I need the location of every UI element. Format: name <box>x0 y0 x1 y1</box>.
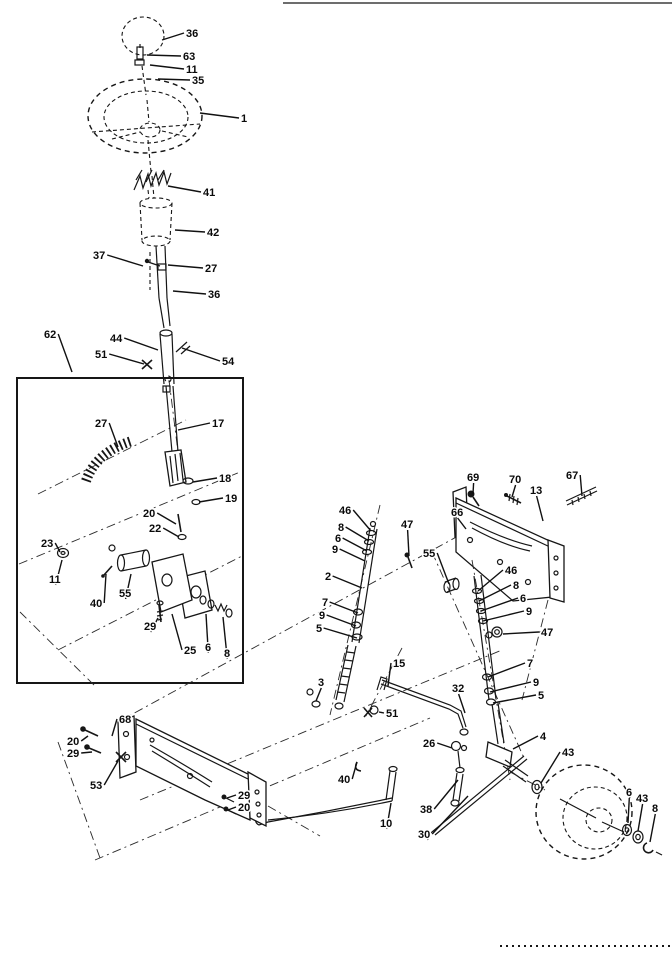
callout-label-8: 8 <box>513 580 519 592</box>
callout-leader <box>408 530 409 556</box>
callout-label-7: 7 <box>527 658 533 670</box>
callout-leader <box>150 65 184 69</box>
callout-leader <box>638 804 643 831</box>
callout-label-23: 23 <box>41 538 53 550</box>
callout-label-11: 11 <box>49 574 61 586</box>
callout-leader <box>541 752 560 783</box>
callout-leader <box>346 527 369 541</box>
callout-label-2: 2 <box>325 571 331 583</box>
callout-leader <box>81 752 92 753</box>
callout-label-68: 68 <box>119 714 131 726</box>
callout-leader <box>147 55 181 56</box>
callout-label-7: 7 <box>322 597 328 609</box>
callout-leader <box>537 496 543 521</box>
callout-leader <box>104 574 106 603</box>
callout-leader <box>580 475 582 496</box>
callout-label-55: 55 <box>423 548 435 560</box>
callout-label-29: 29 <box>144 621 156 633</box>
callout-label-54: 54 <box>222 356 235 368</box>
exploded-parts-diagram: 3663113514142372736624451541727181920222… <box>0 0 672 953</box>
callout-leader <box>173 291 206 294</box>
callout-label-20: 20 <box>143 508 155 520</box>
callout-leader <box>168 265 203 268</box>
shaft-extension <box>142 330 190 384</box>
callout-leader <box>168 186 201 192</box>
upper-steering-shaft <box>145 246 170 328</box>
callout-label-36: 36 <box>186 28 198 40</box>
callout-leader <box>104 761 118 785</box>
callout-leader <box>437 553 449 584</box>
callout-leader <box>200 113 239 118</box>
callout-label-5: 5 <box>538 690 544 702</box>
callout-leader <box>437 743 452 748</box>
callout-label-67: 67 <box>566 470 578 482</box>
callout-leader <box>330 602 358 613</box>
callout-leader <box>483 611 524 621</box>
steering-wheel-assembly <box>88 17 202 172</box>
callout-label-5: 5 <box>316 623 322 635</box>
callout-label-15: 15 <box>393 658 405 670</box>
callout-label-6: 6 <box>626 787 632 799</box>
callout-leader <box>512 485 516 497</box>
callout-label-9: 9 <box>319 610 325 622</box>
drag-link-bushing <box>444 578 459 593</box>
callout-label-4: 4 <box>540 731 547 743</box>
callout-label-9: 9 <box>332 544 338 556</box>
callout-label-62: 62 <box>44 329 56 341</box>
callout-label-3: 3 <box>318 677 324 689</box>
callout-label-26: 26 <box>423 738 435 750</box>
callout-label-47: 47 <box>401 519 413 531</box>
callout-leader <box>493 695 536 703</box>
callout-label-17: 17 <box>212 418 224 430</box>
callout-label-9: 9 <box>533 677 539 689</box>
callout-label-47: 47 <box>541 627 553 639</box>
callout-label-36: 36 <box>208 289 220 301</box>
callout-label-42: 42 <box>207 227 219 239</box>
callout-leader <box>172 614 182 650</box>
callout-label-51: 51 <box>386 708 398 720</box>
callout-label-29: 29 <box>238 790 250 802</box>
callout-leader <box>434 780 458 809</box>
callout-label-44: 44 <box>110 333 123 345</box>
callout-leader <box>628 798 629 823</box>
callout-label-25: 25 <box>184 645 196 657</box>
callout-leader <box>162 33 184 40</box>
callout-leader <box>193 478 217 482</box>
callout-leader <box>650 814 655 842</box>
callout-leader <box>513 736 538 749</box>
callout-leader <box>199 498 223 502</box>
callout-leader <box>182 348 220 361</box>
callout-label-43: 43 <box>562 747 574 759</box>
callout-label-46: 46 <box>339 505 351 517</box>
front-wheel <box>510 765 662 859</box>
callout-leader <box>473 483 474 494</box>
callout-leader <box>175 230 205 232</box>
callout-leader <box>327 615 356 626</box>
callout-label-32: 32 <box>452 683 464 695</box>
steering-sleeve <box>140 176 172 246</box>
callout-label-13: 13 <box>530 485 542 497</box>
callout-label-9: 9 <box>526 606 532 618</box>
callout-leader <box>158 79 190 80</box>
callout-leader <box>379 712 384 713</box>
callout-leader <box>109 423 118 447</box>
callout-label-27: 27 <box>205 263 217 275</box>
callout-label-40: 40 <box>338 774 350 786</box>
callout-leader <box>488 663 525 677</box>
callout-label-22: 22 <box>149 523 161 535</box>
callout-leader <box>481 598 518 611</box>
callout-label-37: 37 <box>93 250 105 262</box>
callout-label-53: 53 <box>90 780 102 792</box>
callout-label-8: 8 <box>652 803 658 815</box>
callout-label-30: 30 <box>418 829 430 841</box>
callout-leader <box>333 576 362 588</box>
callout-leader <box>340 549 365 561</box>
callout-label-20: 20 <box>238 802 250 814</box>
callout-leader <box>324 628 357 638</box>
callout-leader <box>58 334 72 372</box>
callout-label-20: 20 <box>67 736 79 748</box>
callout-label-10: 10 <box>380 818 392 830</box>
callout-leader <box>503 632 539 634</box>
callout-label-41: 41 <box>203 187 215 199</box>
callout-leader <box>316 688 321 701</box>
callout-leader <box>178 423 210 430</box>
callout-label-38: 38 <box>420 804 432 816</box>
callout-leader <box>107 255 143 266</box>
callout-leader <box>432 796 468 834</box>
callout-leader <box>124 338 158 350</box>
callout-label-29: 29 <box>67 748 79 760</box>
callout-label-55: 55 <box>119 588 131 600</box>
callout-leader <box>112 719 117 736</box>
callout-label-1: 1 <box>241 113 247 125</box>
callout-label-43: 43 <box>636 793 648 805</box>
callout-label-66: 66 <box>451 507 463 519</box>
callout-label-18: 18 <box>219 473 231 485</box>
callout-label-8: 8 <box>224 648 230 660</box>
callout-label-19: 19 <box>225 493 237 505</box>
callout-label-51: 51 <box>95 349 107 361</box>
callout-label-35: 35 <box>192 75 204 87</box>
callout-leader <box>352 762 357 779</box>
callout-leader <box>353 510 371 531</box>
callout-label-69: 69 <box>467 472 479 484</box>
callout-leader <box>81 736 88 741</box>
callout-leader <box>490 682 531 692</box>
callout-label-6: 6 <box>520 593 526 605</box>
callout-label-27: 27 <box>95 418 107 430</box>
callout-leader <box>163 528 179 537</box>
callout-leader <box>343 538 367 551</box>
drag-link-10 <box>256 706 397 825</box>
callout-label-40: 40 <box>90 598 102 610</box>
callout-leader <box>109 354 144 364</box>
callout-label-6: 6 <box>205 642 211 654</box>
callout-label-70: 70 <box>509 474 521 486</box>
callout-label-46: 46 <box>505 565 517 577</box>
parts-diagram-page: 3663113514142372736624451541727181920222… <box>0 0 672 953</box>
callout-label-63: 63 <box>183 51 195 63</box>
